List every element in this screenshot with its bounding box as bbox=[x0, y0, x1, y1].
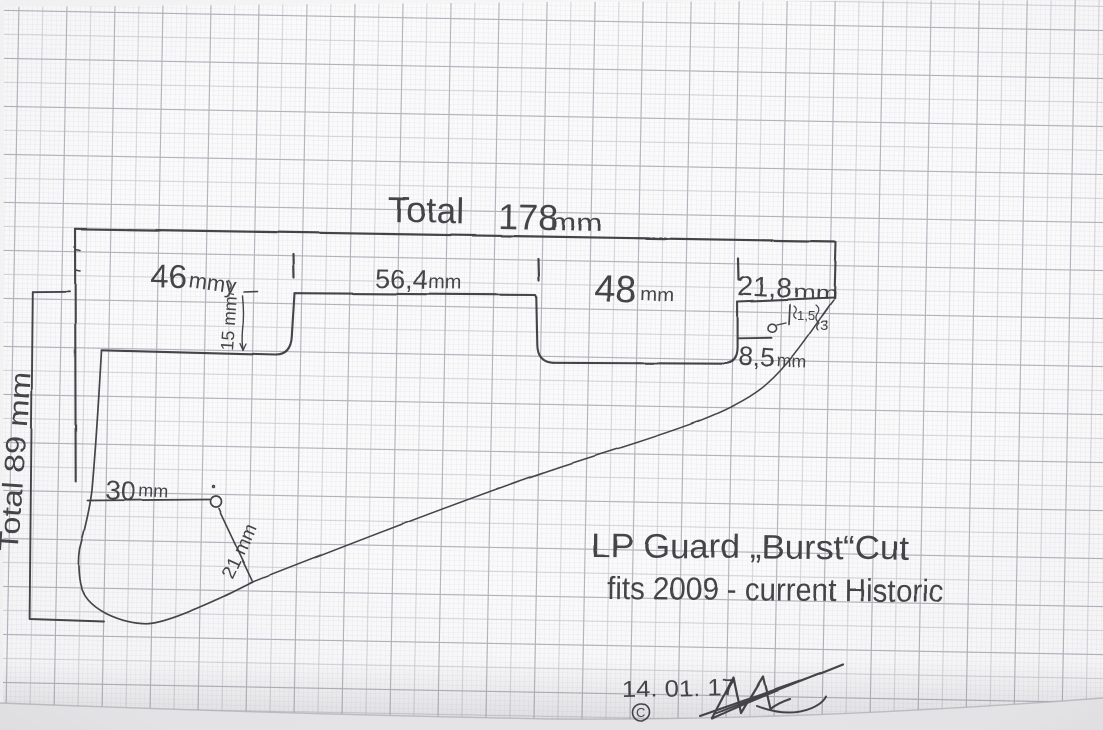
svg-text:mm: mm bbox=[550, 209, 602, 237]
svg-text:14. 01. 17: 14. 01. 17 bbox=[622, 674, 736, 702]
svg-text:mm: mm bbox=[793, 281, 839, 303]
svg-text:8,5: 8,5 bbox=[738, 340, 776, 372]
svg-text:21,8: 21,8 bbox=[737, 270, 793, 304]
svg-text:fits 2009 - current Historic: fits 2009 - current Historic bbox=[607, 570, 943, 609]
svg-text:mm: mm bbox=[138, 480, 169, 502]
svg-text:mm: mm bbox=[640, 284, 675, 306]
svg-text:56,4: 56,4 bbox=[375, 264, 428, 295]
svg-text:15 mm: 15 mm bbox=[217, 295, 241, 351]
svg-text:1,5: 1,5 bbox=[797, 308, 815, 323]
svg-text:mm: mm bbox=[428, 271, 462, 294]
svg-text:46: 46 bbox=[150, 257, 188, 295]
svg-text:30: 30 bbox=[105, 475, 137, 507]
svg-text:LP Guard „Burst“Cut: LP Guard „Burst“Cut bbox=[591, 527, 910, 568]
svg-text:Total: Total bbox=[388, 189, 465, 231]
svg-text:mm: mm bbox=[776, 350, 807, 372]
svg-text:48: 48 bbox=[594, 268, 638, 311]
svg-text:C: C bbox=[636, 705, 645, 720]
svg-text:3: 3 bbox=[820, 317, 828, 334]
